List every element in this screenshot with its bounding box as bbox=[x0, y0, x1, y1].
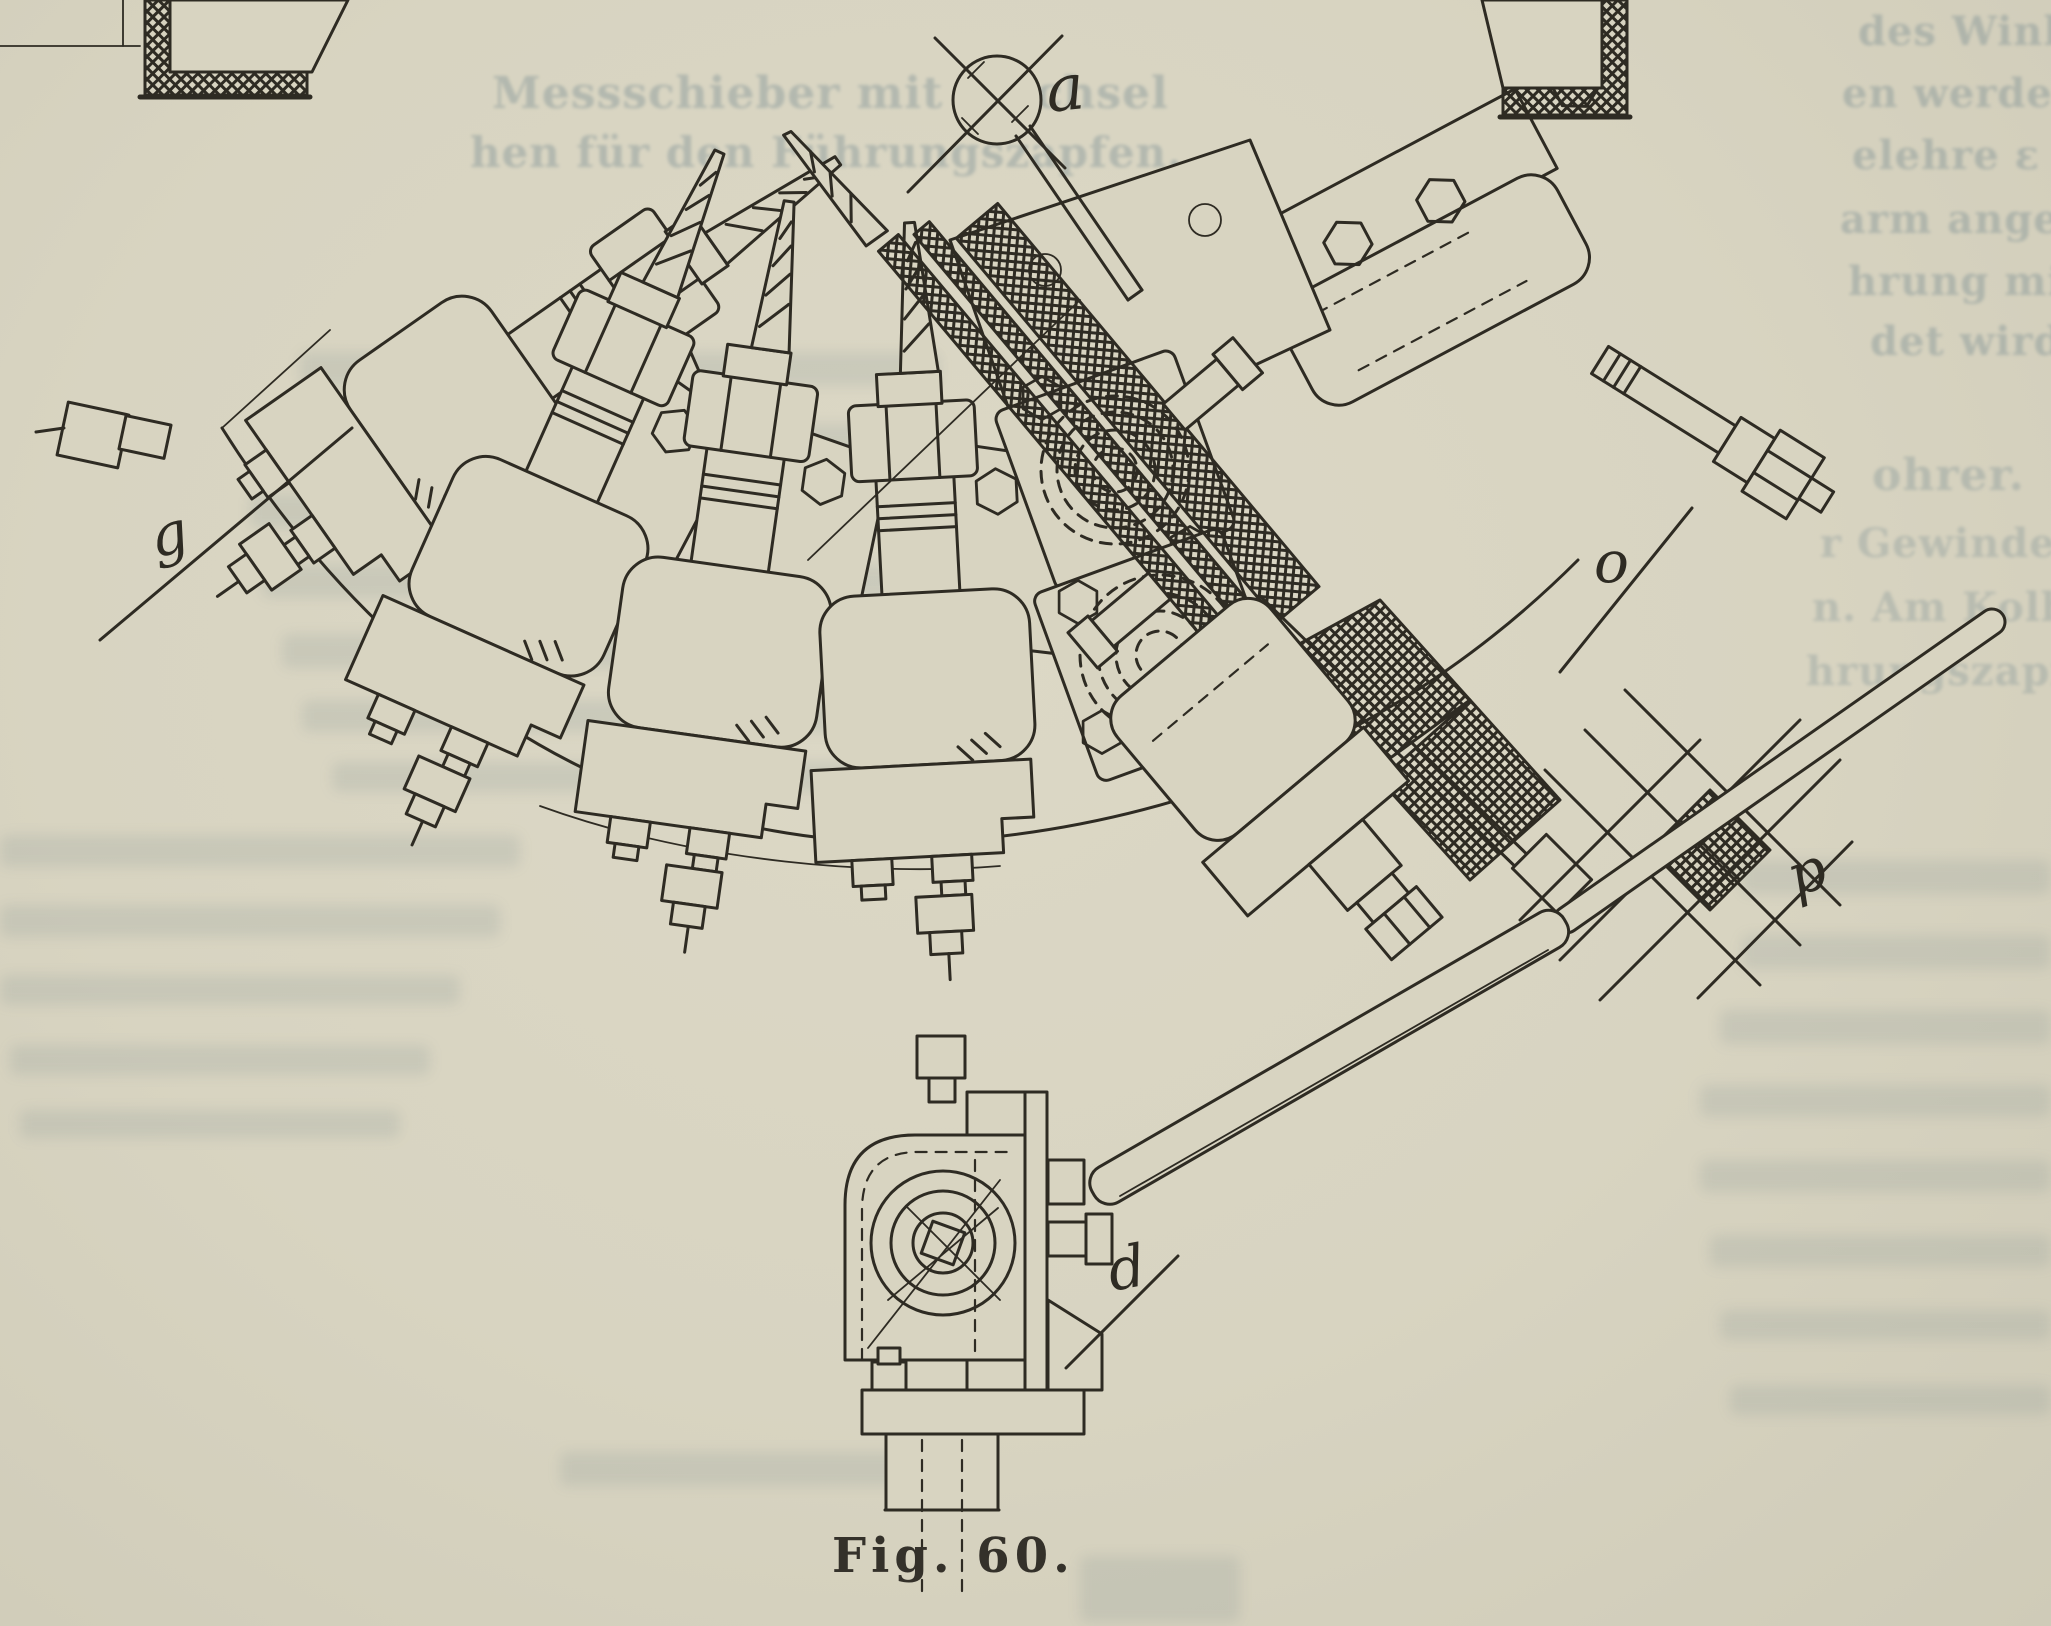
part-label-a: a bbox=[1042, 50, 1088, 128]
cropped-frame-corner-right bbox=[1482, 0, 1630, 117]
clamp-unit-1-outer-end bbox=[36, 402, 171, 468]
part-label-o: o bbox=[1594, 528, 1629, 596]
figure-caption: Fig. 60. bbox=[832, 1528, 1075, 1584]
clamp-unit-right-top bbox=[1224, 53, 1847, 532]
cropped-frame-corner-left bbox=[0, 0, 348, 97]
lever-shaft bbox=[1083, 904, 1575, 1211]
scanned-page: Messschieber mit Wechsel hen für den Füh… bbox=[0, 0, 2051, 1626]
centre-unit-stem bbox=[917, 1036, 965, 1102]
bearing-bracket-detail bbox=[845, 1092, 1112, 1592]
adjusting-rod bbox=[1581, 329, 1846, 532]
drill-clamp-units bbox=[36, 57, 1085, 987]
lever-handle bbox=[1549, 604, 2010, 938]
fig60-line-drawing bbox=[0, 0, 2051, 1626]
